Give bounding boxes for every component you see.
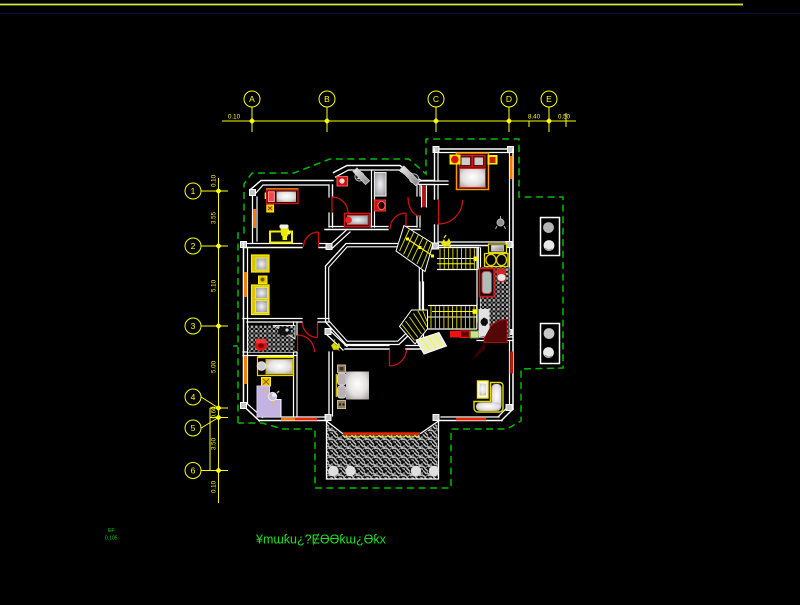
svg-text:3: 3 xyxy=(191,321,196,331)
svg-text:EF: EF xyxy=(108,528,114,534)
svg-text:6: 6 xyxy=(191,466,196,476)
svg-text:¥mɯƙu¿?ɆƟƟƙɯ¿Ɵƙx: ¥mɯƙu¿?ɆƟƟƙɯ¿Ɵƙx xyxy=(255,533,387,547)
svg-text:0.10: 0.10 xyxy=(211,174,218,187)
svg-text:E: E xyxy=(546,94,552,104)
svg-text:0.10: 0.10 xyxy=(211,480,218,493)
svg-text:3.55: 3.55 xyxy=(211,211,218,224)
svg-text:0.50: 0.50 xyxy=(558,114,571,121)
svg-text:0.60: 0.60 xyxy=(211,406,218,419)
svg-text:5: 5 xyxy=(191,423,196,433)
svg-text:D: D xyxy=(506,94,512,104)
svg-text:0.105: 0.105 xyxy=(105,536,118,542)
svg-text:8.40: 8.40 xyxy=(528,114,541,121)
svg-text:3.50: 3.50 xyxy=(211,437,218,450)
svg-text:0.10: 0.10 xyxy=(228,114,241,121)
svg-text:2: 2 xyxy=(191,241,196,251)
svg-text:A: A xyxy=(249,94,255,104)
svg-text:4: 4 xyxy=(191,392,196,402)
svg-text:1: 1 xyxy=(191,186,196,196)
svg-text:C: C xyxy=(433,94,439,104)
svg-text:B: B xyxy=(324,94,330,104)
svg-text:5.10: 5.10 xyxy=(211,279,218,292)
svg-text:5.00: 5.00 xyxy=(211,360,218,373)
